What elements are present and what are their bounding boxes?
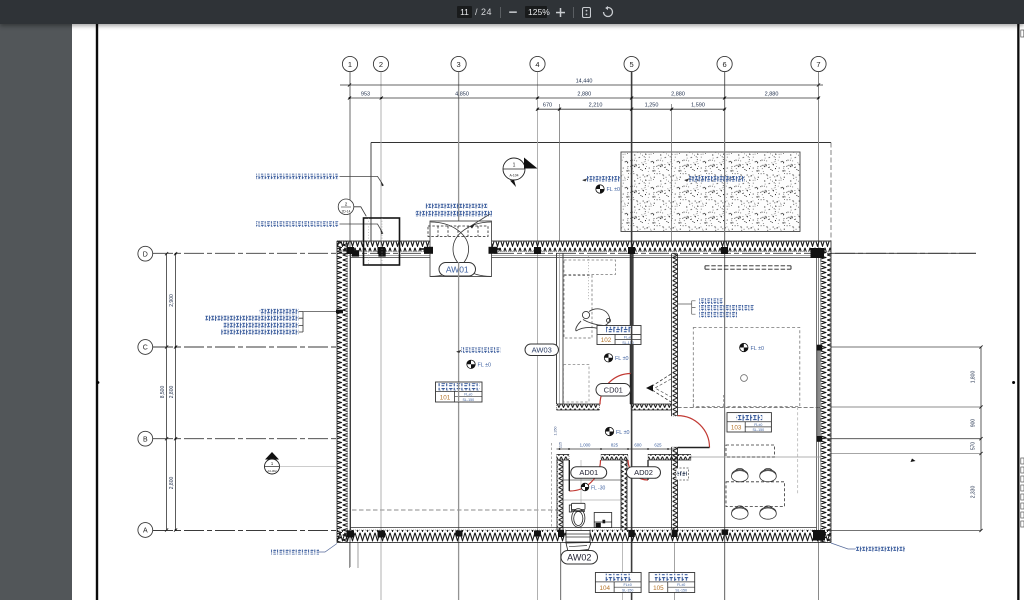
svg-text:SL-150: SL-150: [675, 589, 687, 593]
svg-text:AW01: AW01: [446, 264, 469, 274]
svg-text:101: 101: [440, 394, 451, 401]
svg-text:2: 2: [345, 201, 348, 206]
svg-text:2,880: 2,880: [671, 91, 685, 97]
svg-text:SL-150: SL-150: [753, 428, 765, 432]
svg-text:900: 900: [971, 419, 977, 428]
svg-text:FL±0: FL±0: [464, 393, 472, 397]
svg-text:2,880: 2,880: [765, 91, 779, 97]
svg-text:4: 4: [535, 60, 539, 69]
svg-text:2,900: 2,900: [169, 294, 175, 307]
svg-text:600: 600: [634, 442, 642, 447]
svg-text:B: B: [143, 436, 148, 443]
svg-text:953: 953: [361, 91, 370, 97]
svg-text:570: 570: [971, 442, 977, 451]
svg-text:8,500: 8,500: [160, 386, 166, 399]
svg-text:AW03: AW03: [532, 345, 552, 354]
svg-text:FL±0: FL±0: [624, 583, 632, 587]
svg-text:SL-150: SL-150: [462, 398, 474, 402]
svg-text:AD02: AD02: [634, 468, 653, 477]
svg-text:625: 625: [654, 442, 662, 447]
svg-text:2,800: 2,800: [169, 386, 175, 399]
svg-text:FL ±0: FL ±0: [751, 346, 765, 352]
svg-text:103: 103: [731, 424, 742, 431]
svg-text:CD01: CD01: [604, 385, 623, 394]
svg-text:5: 5: [630, 60, 634, 69]
svg-text:1,000: 1,000: [580, 442, 591, 447]
svg-text:FL ±0: FL ±0: [607, 187, 621, 193]
svg-text:104: 104: [600, 585, 611, 592]
svg-text:AW02: AW02: [567, 552, 591, 562]
svg-text:2: 2: [379, 60, 383, 69]
svg-text:2,800: 2,800: [169, 477, 175, 490]
svg-text:1,350: 1,350: [554, 427, 558, 436]
svg-text:1: 1: [348, 60, 352, 69]
svg-text:AD01: AD01: [579, 468, 598, 477]
svg-text:825: 825: [611, 442, 619, 447]
svg-text:A: A: [143, 528, 148, 535]
svg-text:C: C: [143, 345, 148, 352]
svg-text:FL -30: FL -30: [591, 485, 605, 491]
svg-text:2,880: 2,880: [577, 91, 591, 97]
svg-text:1: 1: [513, 163, 516, 169]
svg-text:1,250: 1,250: [645, 103, 659, 109]
svg-text:7: 7: [816, 60, 820, 69]
svg-text:FL ±0: FL ±0: [616, 430, 630, 436]
svg-text:FL±0: FL±0: [754, 423, 762, 427]
svg-text:6: 6: [723, 60, 727, 69]
svg-text:102: 102: [601, 337, 612, 344]
svg-text:670: 670: [543, 103, 552, 109]
svg-text:FL±0: FL±0: [677, 583, 685, 587]
svg-text:1,590: 1,590: [691, 103, 705, 109]
svg-text:D: D: [143, 251, 148, 258]
svg-text:FL ±0: FL ±0: [478, 363, 492, 369]
svg-text:225: 225: [559, 442, 563, 448]
svg-text:1,800: 1,800: [971, 371, 977, 384]
svg-text:2D-14: 2D-14: [342, 209, 351, 213]
svg-text:FL ±0: FL ±0: [615, 356, 629, 362]
svg-text:2,210: 2,210: [589, 103, 603, 109]
svg-text:A-104: A-104: [509, 174, 518, 178]
svg-text:SL-150: SL-150: [622, 589, 634, 593]
svg-text:14,440: 14,440: [576, 78, 593, 84]
svg-text:3: 3: [457, 60, 461, 69]
svg-text:A3-302: A3-302: [267, 469, 277, 473]
svg-text:105: 105: [653, 585, 664, 592]
svg-text:4,850: 4,850: [455, 91, 469, 97]
svg-text:2,330: 2,330: [971, 486, 977, 499]
